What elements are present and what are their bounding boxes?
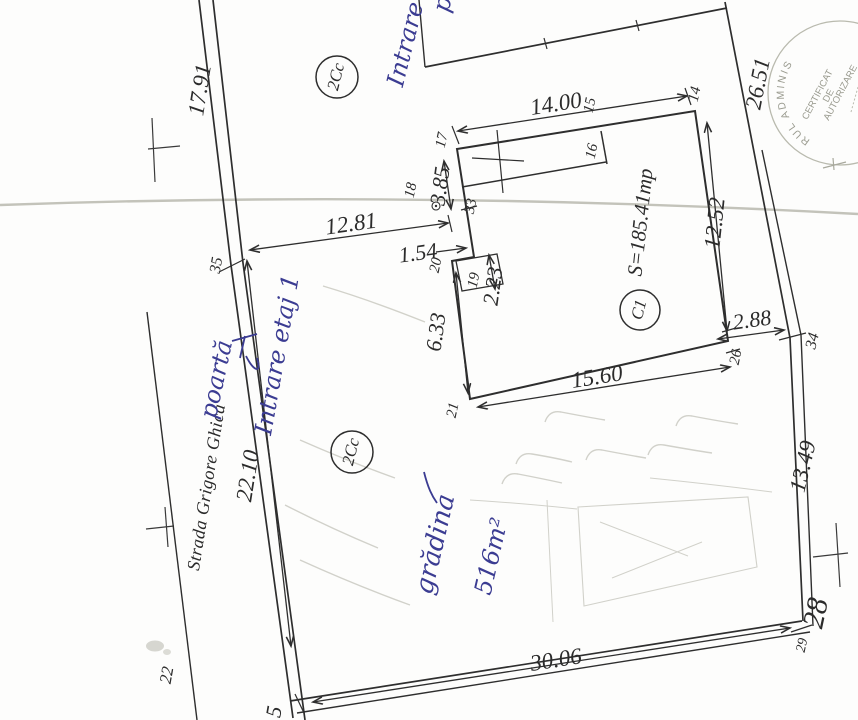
point-label-21: 21 [444,401,463,419]
building-partition-end [601,131,607,164]
street-point-label-22: 22 [156,665,178,686]
room-cross-mark [472,158,524,161]
point-label-14: 14 [686,85,705,103]
dim-label-22-10: 22.10 [231,448,264,504]
boundary-lines [147,0,813,720]
stamp-small-text-line [851,80,858,112]
dim-label-17-91: 17.91 [183,62,216,117]
building-c1 [432,111,728,399]
dim-label-30-06: 30.06 [527,643,584,676]
dim-label-12-81: 12.81 [324,208,379,240]
grid-cross [813,523,848,587]
handwriting-gate: poartă [194,338,238,422]
dim-label-6-33: 6.33 [421,311,451,353]
point-label-33: 33 [461,197,480,216]
point-label-26: 26 [727,348,746,366]
grid-cross [148,118,180,182]
handwriting-entrance-top-2: p [427,0,458,15]
building-area-label: S=185.41mp [622,167,657,277]
dimension-lines [247,96,790,702]
certification-stamp: RUL ADMINIS CERTIFICAT DE AUTORIZARE [768,21,858,170]
dim-label-14-00: 14.00 [528,87,584,120]
building-id-label: C1 [627,298,650,322]
scan-smudge [163,649,171,655]
zone-markers [316,56,373,473]
zone-label-bottom: 2Cc [338,436,363,468]
street-left-edge-line [147,312,197,720]
dim-label-2-23: 2.23 [478,265,508,307]
top-boundary-line [425,8,727,67]
right-boundary-line-2 [762,150,813,626]
handwriting-garden-area: 516m² [469,515,514,597]
dim-line-1-54 [436,248,466,252]
dim-label-13-49: 13.49 [785,438,821,495]
building-partition-line [462,162,606,187]
point-label-35: 35 [207,256,227,276]
point-label-34: 34 [802,331,823,352]
point-label-28: 28 [796,595,835,631]
point-label-5: 5 [260,704,287,719]
dim-label-15-60: 15.60 [569,360,625,393]
dim-label-26-51: 26.51 [740,56,774,112]
room-cross-mark [497,130,503,193]
grid-cross [146,507,174,547]
site-plan-drawing: 14.00 12.81 17.91 22.10 26.51 13.49 30.0… [0,0,858,720]
point-label-17: 17 [433,130,452,149]
handwriting-entrance-top: Intrare [381,0,429,90]
dim-label-2-88: 2.88 [731,305,773,335]
point-label-29: 29 [794,637,812,654]
point-label-15: 15 [581,96,600,114]
point-label-18: 18 [402,181,421,199]
handwriting-garden: grădina [409,491,461,597]
scan-smudge [146,641,164,652]
point-label-20: 20 [427,256,446,274]
dim-label-12-52: 12.52 [699,196,729,250]
street-name: Strada Grigore Ghica [183,402,229,571]
cadastral-plan-scan: 14.00 12.81 17.91 22.10 26.51 13.49 30.0… [0,0,858,720]
zone-label-top: 2Cc [323,61,348,93]
point-label-16: 16 [583,142,602,160]
